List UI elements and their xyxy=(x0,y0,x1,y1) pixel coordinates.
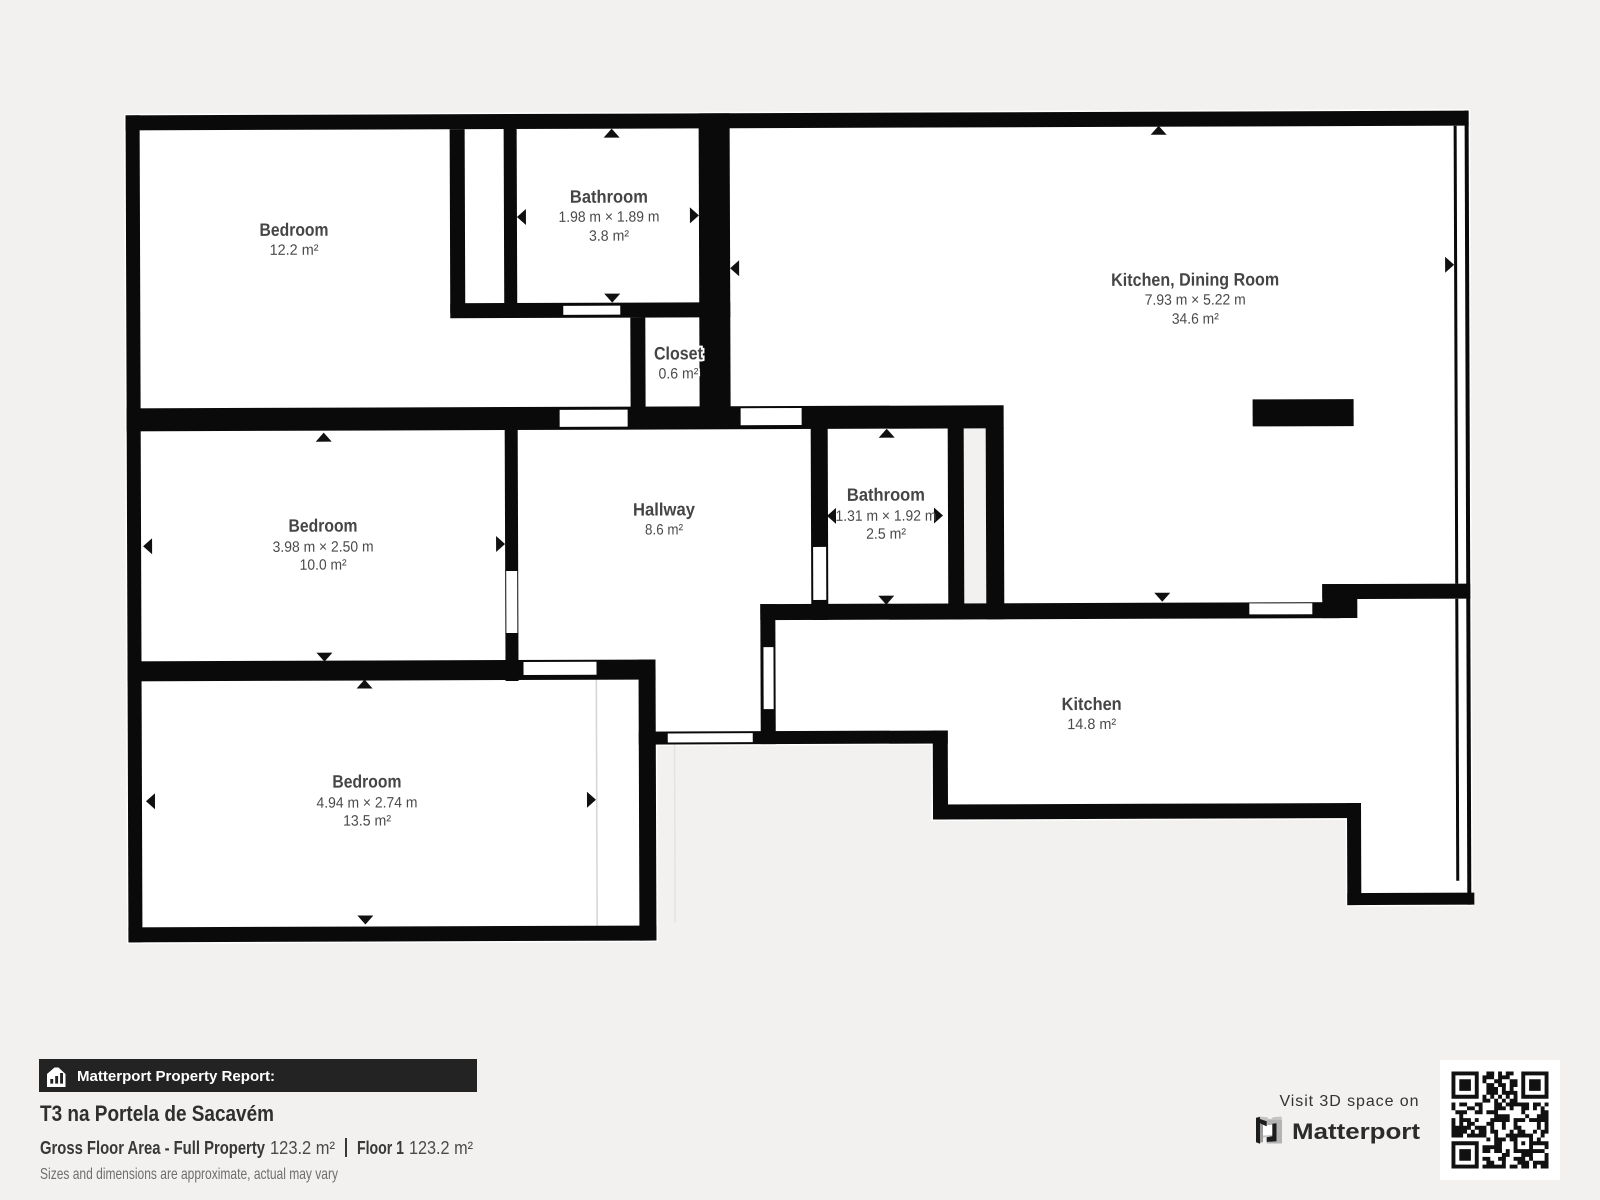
svg-text:1.98 m × 1.89 m: 1.98 m × 1.89 m xyxy=(558,208,659,225)
svg-text:10.0 m²: 10.0 m² xyxy=(300,557,347,574)
svg-text:12.2 m²: 12.2 m² xyxy=(270,242,319,259)
svg-text:1.31 m × 1.92 m: 1.31 m × 1.92 m xyxy=(835,508,936,525)
svg-text:Kitchen: Kitchen xyxy=(1062,694,1122,714)
svg-text:Bathroom: Bathroom xyxy=(847,485,925,505)
svg-text:123.2 m²: 123.2 m² xyxy=(270,1138,335,1158)
svg-text:14.8 m²: 14.8 m² xyxy=(1067,716,1116,733)
svg-text:Gross Floor Area - Full Proper: Gross Floor Area - Full Property xyxy=(40,1138,265,1158)
svg-text:Kitchen, Dining Room: Kitchen, Dining Room xyxy=(1111,269,1279,290)
svg-text:T3 na Portela de Sacavém: T3 na Portela de Sacavém xyxy=(40,1101,274,1126)
svg-text:0.6 m²: 0.6 m² xyxy=(658,365,698,382)
svg-text:3.8 m²: 3.8 m² xyxy=(589,228,629,245)
svg-text:Bedroom: Bedroom xyxy=(332,771,401,791)
svg-text:Sizes and dimensions are appro: Sizes and dimensions are approximate, ac… xyxy=(40,1166,338,1183)
svg-text:123.2 m²: 123.2 m² xyxy=(409,1138,473,1158)
svg-text:2.5 m²: 2.5 m² xyxy=(866,526,906,543)
svg-text:13.5 m²: 13.5 m² xyxy=(343,812,391,829)
svg-text:7.93 m × 5.22 m: 7.93 m × 5.22 m xyxy=(1145,291,1246,308)
svg-text:Bathroom: Bathroom xyxy=(570,187,648,207)
svg-text:Closet: Closet xyxy=(654,343,703,363)
svg-text:Bedroom: Bedroom xyxy=(288,516,357,536)
svg-text:Bedroom: Bedroom xyxy=(259,220,328,240)
svg-text:Matterport Property Report:: Matterport Property Report: xyxy=(77,1068,275,1085)
svg-text:34.6 m²: 34.6 m² xyxy=(1172,311,1219,328)
svg-text:Floor 1: Floor 1 xyxy=(357,1138,404,1158)
svg-text:Visit 3D space on: Visit 3D space on xyxy=(1280,1093,1419,1110)
svg-text:3.98 m × 2.50 m: 3.98 m × 2.50 m xyxy=(273,538,374,555)
svg-text:Hallway: Hallway xyxy=(633,499,695,519)
svg-text:8.6 m²: 8.6 m² xyxy=(645,521,683,538)
svg-text:Matterport: Matterport xyxy=(1292,1119,1421,1144)
svg-text:4.94 m × 2.74 m: 4.94 m × 2.74 m xyxy=(316,794,417,811)
